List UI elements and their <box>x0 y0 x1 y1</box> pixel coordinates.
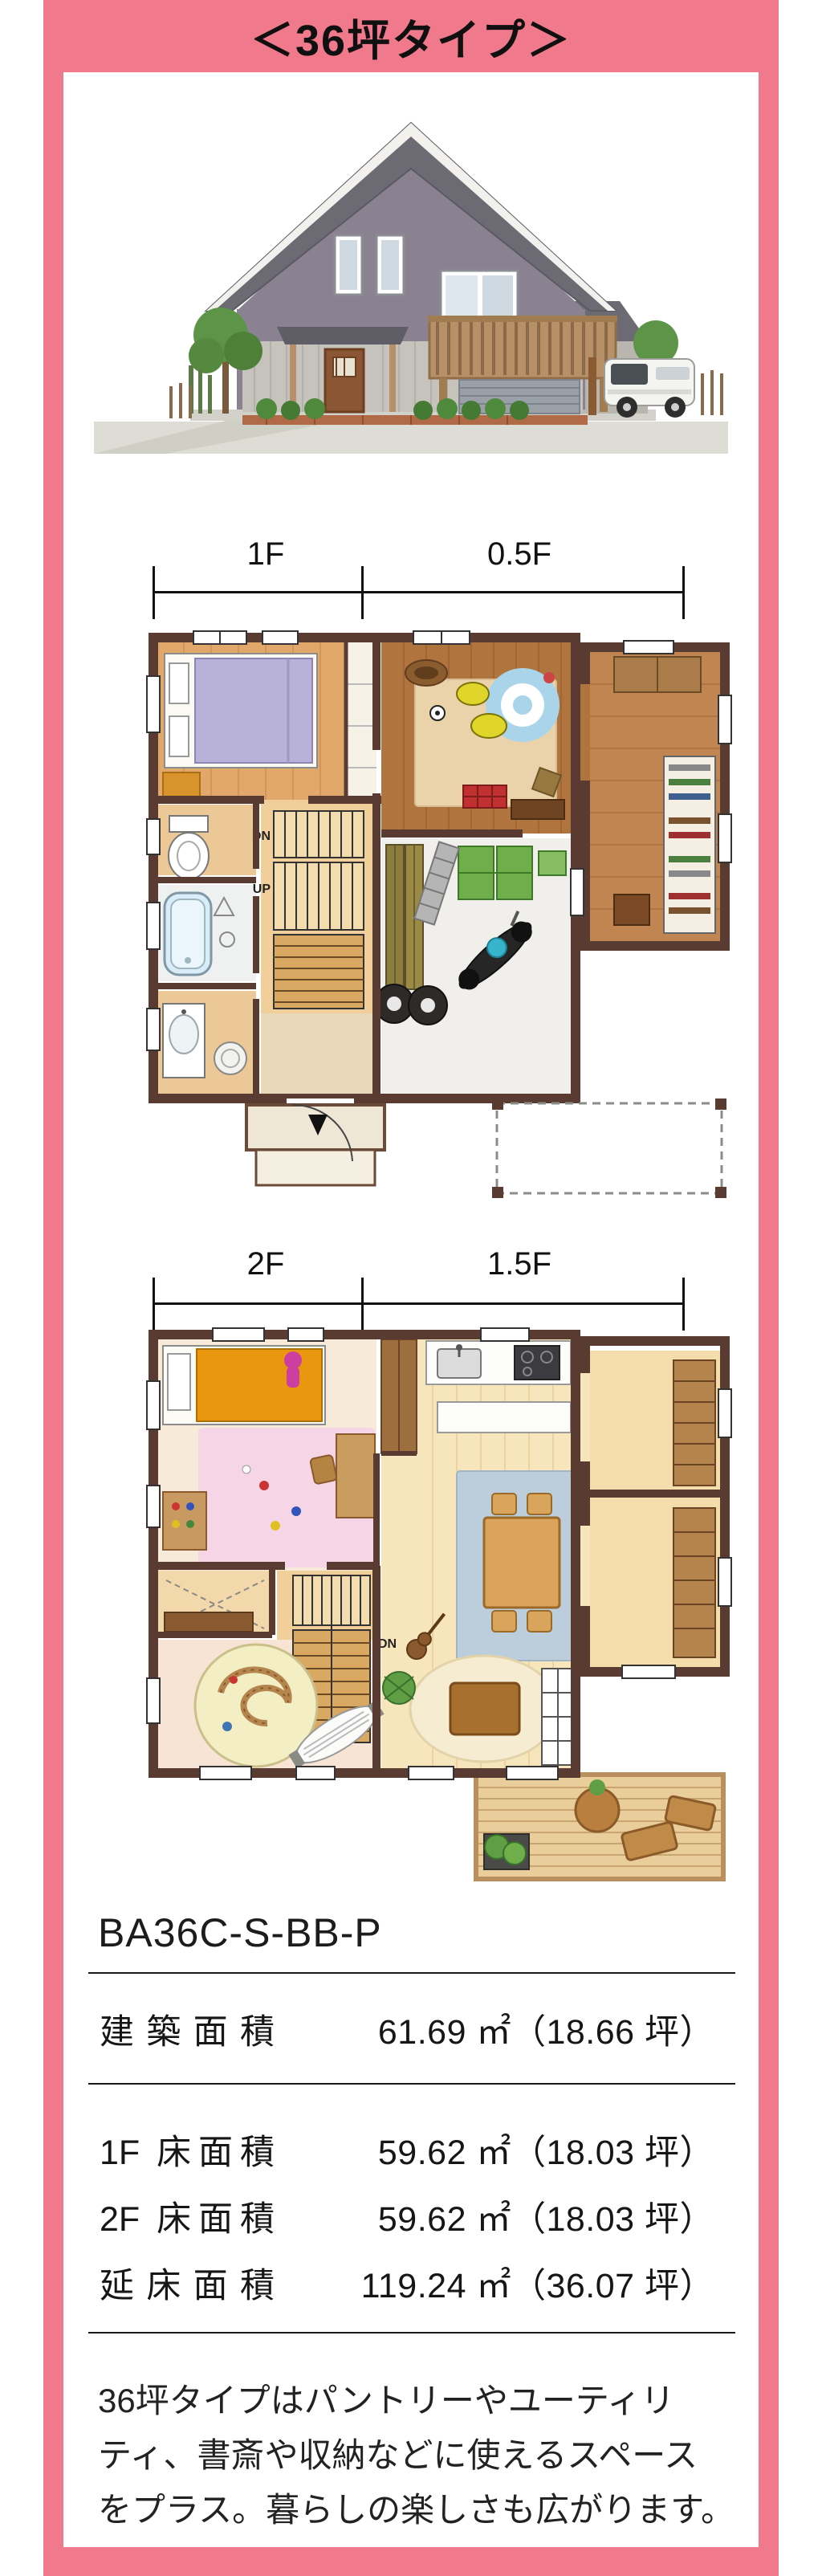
dim-tick-mid <box>361 566 364 619</box>
area-value: 59.62 ㎡（18.03 坪） <box>275 2125 714 2175</box>
floor-plan-1f-svg: DN UP <box>144 628 738 1206</box>
desk <box>336 1434 375 1518</box>
dining <box>457 1471 577 1661</box>
stove <box>515 1346 560 1380</box>
terrace-outline <box>492 1098 726 1198</box>
description-line: 36坪タイプはパントリーやユーティリ <box>98 2374 732 2428</box>
nightstand <box>163 772 200 797</box>
dim-label-05f: 0.5F <box>463 536 576 573</box>
dim-line <box>153 591 682 593</box>
dim-tick-right <box>682 566 685 619</box>
work-bench <box>539 851 566 875</box>
toilet-room <box>169 816 209 879</box>
description-line: ティ、書斎や収納などに使えるスペース <box>98 2428 732 2483</box>
dim-label-15f: 1.5F <box>463 1246 576 1282</box>
living-furniture <box>405 660 564 819</box>
chair <box>527 1611 551 1632</box>
dim-tick-left <box>153 566 155 619</box>
tv-board <box>511 800 564 819</box>
low-cabinet <box>165 1612 253 1632</box>
island-counter <box>437 1402 571 1433</box>
dimension-line-1f: 1F 0.5F <box>63 536 759 633</box>
divider <box>88 2332 735 2333</box>
stairs-dn-label-2f: DN <box>378 1637 397 1651</box>
floor-plan-1f: DN UP <box>144 628 738 1206</box>
toy-shelf <box>163 1492 206 1550</box>
mailbox-post <box>588 357 596 415</box>
area-value: 119.24 ㎡（36.07 坪） <box>275 2258 714 2308</box>
entrance-porch <box>246 1098 385 1185</box>
toilet-bowl <box>169 833 209 879</box>
house-exterior-svg <box>94 100 728 454</box>
dim-label-2f: 2F <box>210 1246 322 1282</box>
desk-chair <box>310 1454 337 1484</box>
area-label: 建築面積 <box>100 2004 275 2054</box>
storage-box <box>614 895 649 925</box>
area-row-1f: 1F 床面積 59.62 ㎡（18.03 坪） <box>100 2116 714 2183</box>
bean-bag <box>457 683 489 705</box>
chair <box>492 1611 516 1632</box>
low-table <box>450 1683 519 1734</box>
block-sofa <box>463 785 507 808</box>
area-row-building: 建築面積 61.69 ㎡（18.66 坪） <box>100 2003 714 2056</box>
toilet-tank <box>169 816 208 832</box>
divider <box>88 1972 735 1974</box>
wood-deck <box>476 1775 723 1879</box>
toy <box>222 1722 232 1731</box>
area-row-total: 延床面積 119.24 ㎡（36.07 坪） <box>100 2249 714 2316</box>
deck-plant <box>589 1779 605 1795</box>
area-row-2f: 2F 床面積 59.62 ㎡（18.03 坪） <box>100 2183 714 2249</box>
dim-label-1f: 1F <box>210 536 322 573</box>
entry-floor <box>261 1013 376 1098</box>
dining-table <box>484 1518 560 1608</box>
closet-shelf <box>673 1508 715 1657</box>
floor-plan-2f: DN <box>144 1325 738 1887</box>
area-value: 59.62 ㎡（18.03 坪） <box>275 2191 714 2241</box>
divider <box>88 2083 735 2085</box>
area-value: 61.69 ㎡（18.66 坪） <box>275 2004 714 2054</box>
chair <box>527 1494 551 1514</box>
chair <box>492 1494 516 1514</box>
area-label: 2F 床面積 <box>100 2191 275 2241</box>
bedroom-closet <box>346 642 376 800</box>
washing-machine <box>214 1042 246 1074</box>
dim-line <box>153 1302 682 1305</box>
floor-plan-2f-svg: DN <box>144 1325 738 1887</box>
content-card: 1F 0.5F <box>63 72 759 2547</box>
dim-tick-mid <box>361 1278 364 1331</box>
page-title: ＜36坪タイプ＞ <box>43 0 779 72</box>
model-code: BA36C-S-BB-P <box>98 1910 382 1956</box>
pantry-wing <box>673 1360 715 1657</box>
description-text: 36坪タイプはパントリーやユーティリ ティ、書斎や収納などに使えるスペース をプ… <box>98 2374 732 2537</box>
stairs-up-label: UP <box>253 882 271 896</box>
dim-tick-right <box>682 1278 685 1331</box>
dim-tick-left <box>153 1278 155 1331</box>
house-exterior-illustration <box>94 100 728 454</box>
area-label: 1F 床面積 <box>100 2125 275 2175</box>
description-line: をプラス。暮らしの楽しさも広がります。 <box>98 2483 732 2537</box>
area-label: 延床面積 <box>100 2258 275 2308</box>
doll <box>284 1351 302 1369</box>
bean-bag <box>471 714 507 738</box>
